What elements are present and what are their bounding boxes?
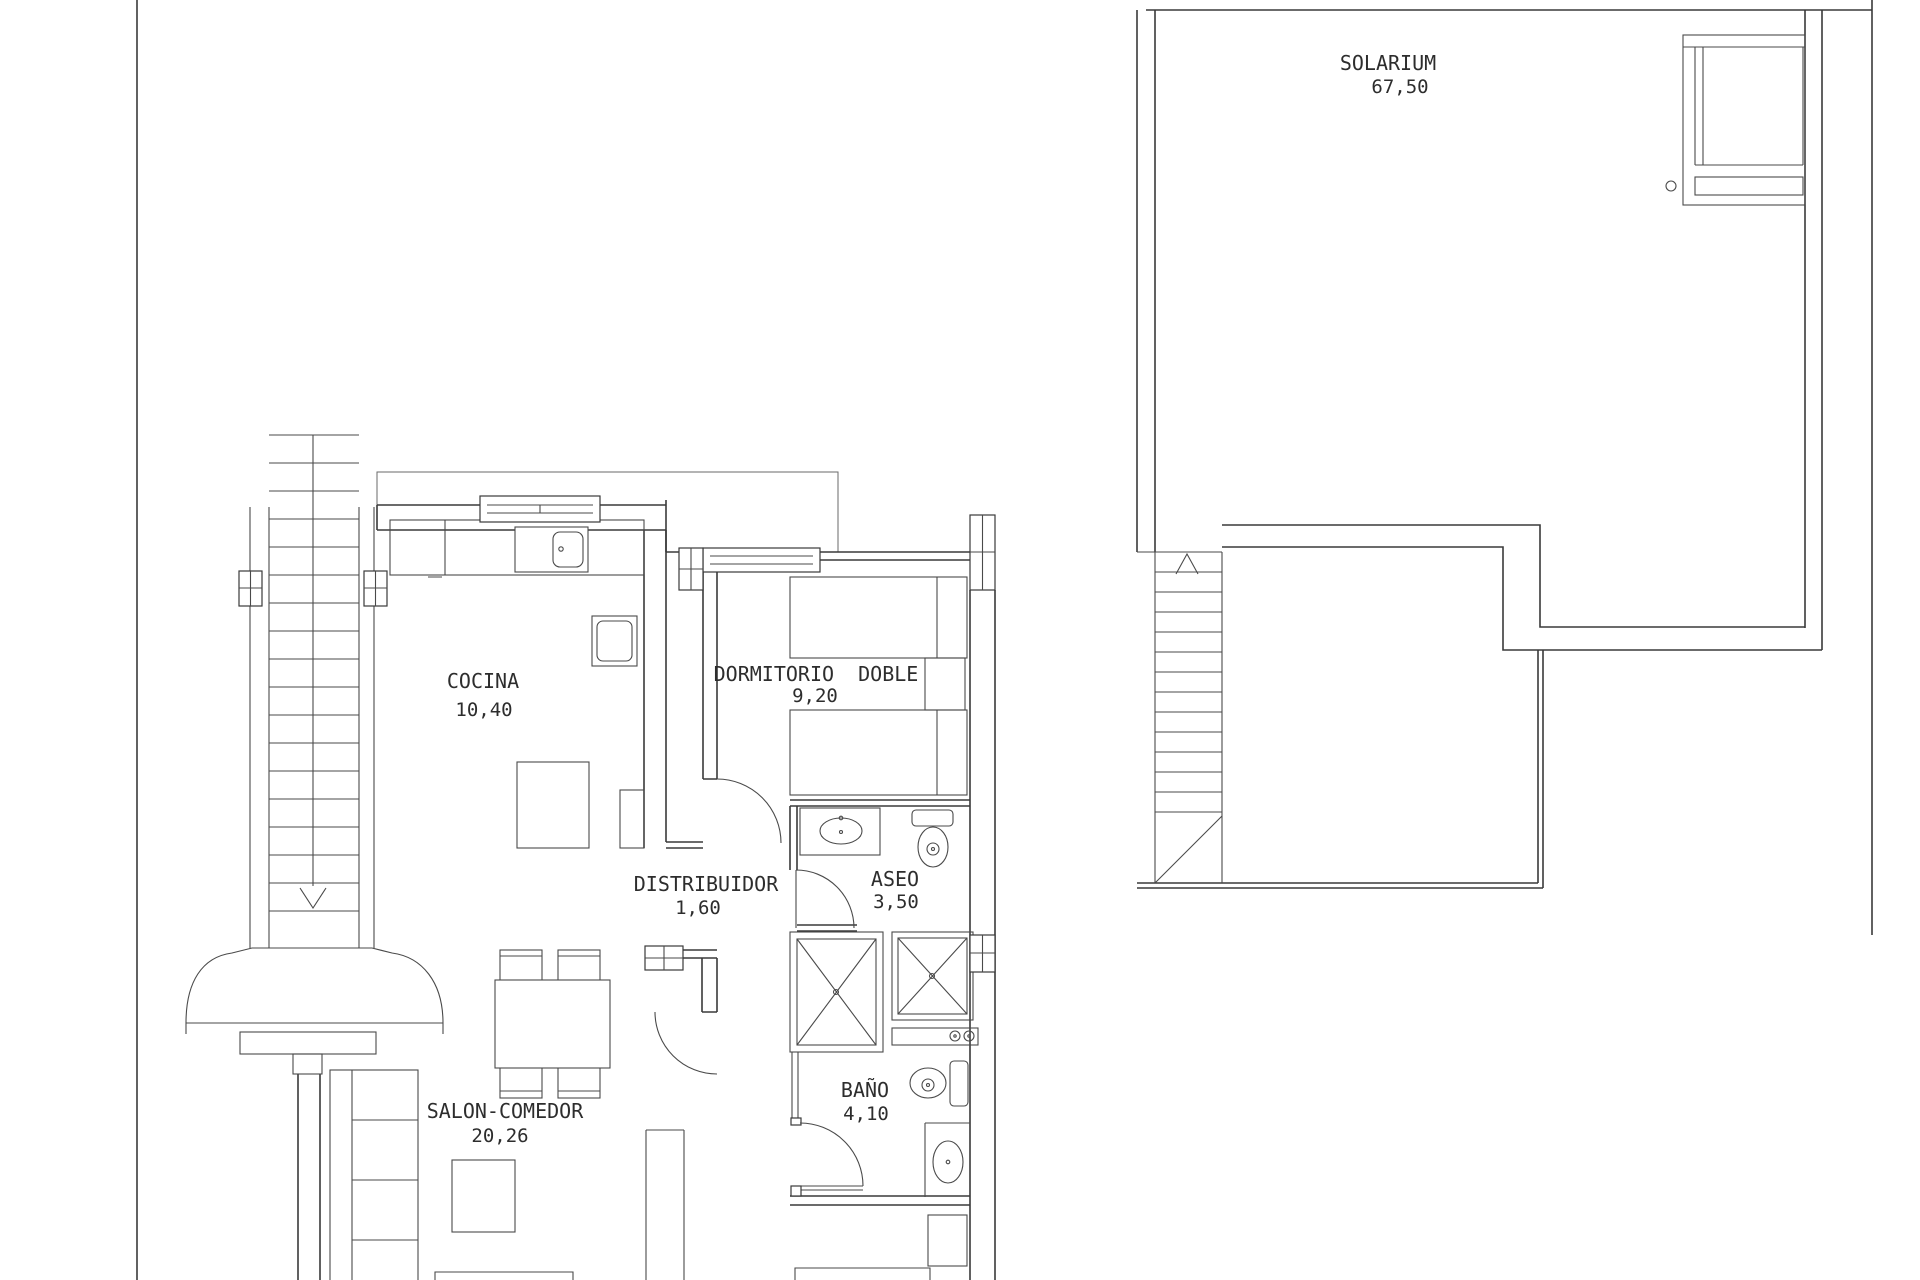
floorplan-canvas: COCINA 10,40 DORMITORIO DOBLE 9,20 DISTR… bbox=[0, 0, 1920, 1280]
area-salon: 20,26 bbox=[471, 1125, 528, 1147]
label-cocina: COCINA bbox=[447, 669, 519, 693]
bath-shelf-taps bbox=[892, 1028, 978, 1045]
aseo-bathroom bbox=[796, 808, 973, 1020]
aseo-toilet bbox=[912, 810, 953, 867]
rooftop-structure bbox=[1666, 35, 1805, 205]
cut-off-furniture bbox=[435, 1272, 573, 1280]
solarium-plan: SOLARIUM 67,50 bbox=[1137, 0, 1872, 935]
bedroom-window bbox=[703, 548, 820, 572]
area-cocina: 10,40 bbox=[455, 699, 512, 721]
sofa bbox=[330, 1070, 418, 1280]
bed-1 bbox=[790, 577, 967, 658]
porch-column-right bbox=[364, 571, 387, 606]
kitchen-sink bbox=[515, 527, 588, 572]
bath-toilet bbox=[910, 1061, 968, 1106]
area-dormitorio: 9,20 bbox=[792, 685, 838, 707]
label-bano: BAÑO bbox=[841, 1078, 889, 1102]
bath-shower bbox=[790, 932, 883, 1052]
bath-window-block bbox=[970, 935, 995, 972]
partial-bed bbox=[795, 1268, 930, 1280]
entry-threshold bbox=[293, 1054, 322, 1074]
dining-table bbox=[495, 980, 610, 1068]
bed-2 bbox=[790, 710, 967, 795]
exterior-staircase bbox=[239, 435, 387, 948]
label-salon: SALON-COMEDOR bbox=[427, 1099, 584, 1123]
solarium-stair-arrow bbox=[1176, 554, 1198, 574]
aseo-shower bbox=[892, 932, 973, 1020]
apartment-plan: COCINA 10,40 DORMITORIO DOBLE 9,20 DISTR… bbox=[137, 0, 995, 1280]
wall-end-block-living bbox=[645, 946, 683, 970]
solarium-stair-break-line bbox=[1155, 816, 1222, 883]
kitchen-window bbox=[480, 496, 600, 522]
kitchen-counter-return bbox=[620, 790, 644, 848]
area-solarium: 67,50 bbox=[1371, 76, 1428, 98]
solarium-stair-treads bbox=[1155, 572, 1222, 812]
solarium-staircase bbox=[1137, 552, 1222, 883]
staircase-direction-arrow bbox=[300, 435, 326, 908]
aseo-washbasin bbox=[800, 808, 880, 855]
lower-roof-edge bbox=[1137, 650, 1543, 888]
porch-column-left bbox=[239, 571, 262, 606]
solarium-left-wall bbox=[1137, 10, 1155, 552]
bedroom-door-arc bbox=[717, 779, 781, 843]
label-distribuidor: DISTRIBUIDOR bbox=[634, 872, 779, 896]
staircase-treads bbox=[269, 435, 359, 911]
rooftop-drain bbox=[1666, 181, 1676, 191]
bath-bidet bbox=[925, 1123, 970, 1197]
label-aseo: ASEO bbox=[871, 867, 919, 891]
entry-porch bbox=[186, 948, 443, 1074]
coffee-table bbox=[452, 1160, 515, 1232]
area-aseo: 3,50 bbox=[873, 891, 919, 913]
aseo-door bbox=[796, 870, 854, 928]
area-bano: 4,10 bbox=[843, 1103, 889, 1125]
kitchen-peninsula bbox=[517, 762, 589, 848]
kitchen-appliance bbox=[592, 616, 637, 666]
sideboard-cabinet bbox=[646, 1130, 684, 1280]
roof-eave-line bbox=[377, 472, 838, 552]
wardrobe bbox=[928, 1215, 967, 1266]
label-dormitorio: DORMITORIO DOBLE bbox=[714, 662, 919, 686]
nightstand bbox=[925, 658, 965, 710]
solarium-right-wall bbox=[1805, 10, 1822, 650]
label-solarium: SOLARIUM bbox=[1340, 51, 1436, 75]
staircase-side-walls bbox=[250, 507, 374, 948]
canopy-arc bbox=[186, 948, 443, 1023]
area-distribuidor: 1,60 bbox=[675, 897, 721, 919]
wall-end-block bbox=[679, 548, 703, 590]
solarium-parapet bbox=[1222, 525, 1822, 650]
second-bedroom-partial bbox=[795, 1215, 967, 1280]
entry-step-slab bbox=[240, 1032, 376, 1054]
living-room-door-arc bbox=[655, 1012, 717, 1074]
corner-wall-block bbox=[970, 515, 995, 590]
